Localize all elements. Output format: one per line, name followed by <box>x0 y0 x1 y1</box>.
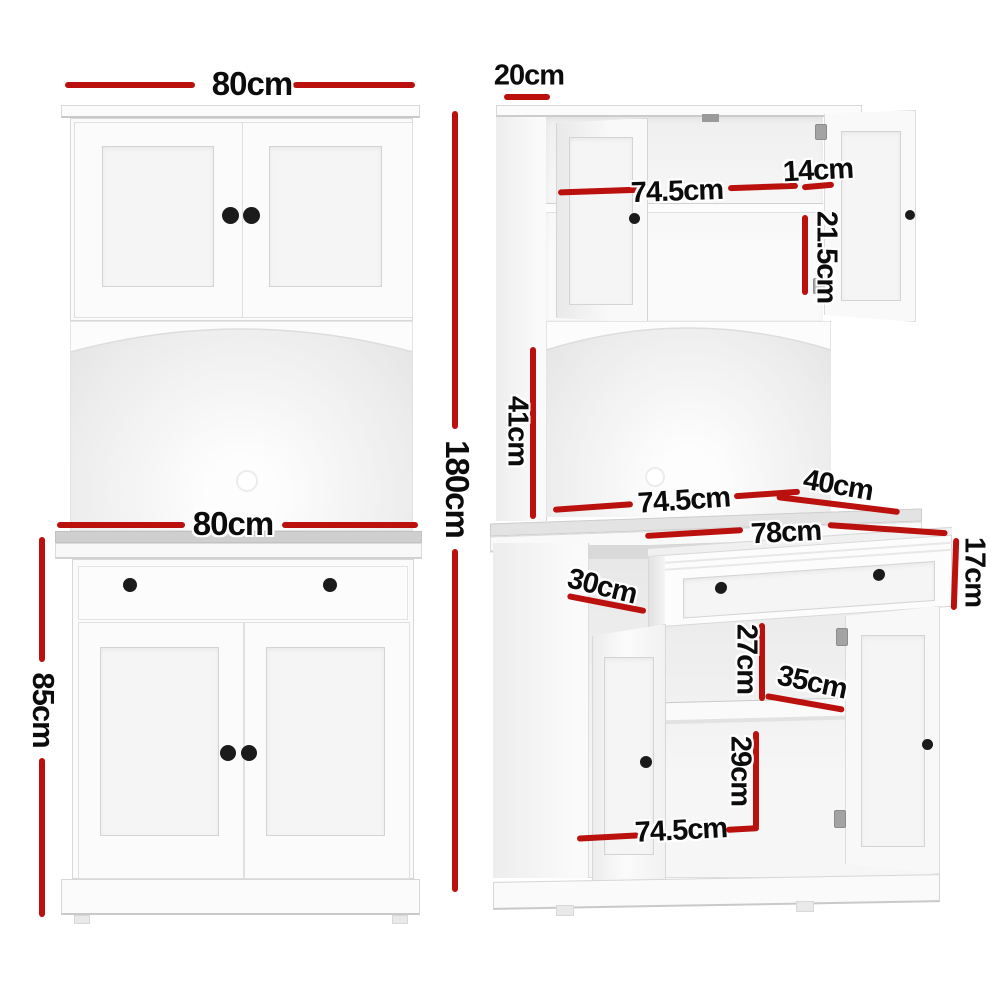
knob <box>241 745 257 761</box>
open-base-door-left <box>592 624 666 894</box>
knob <box>905 210 915 220</box>
knob <box>220 745 236 761</box>
dim-label-top-width: 80cm <box>212 65 292 103</box>
foot <box>392 915 408 924</box>
open-arch-rail <box>546 321 831 351</box>
product-dimension-diagram: 80cm 180cm 80cm 85cm <box>0 0 1000 1000</box>
open-hutch-door-left-panel <box>569 137 633 305</box>
front-base-door-left-panel <box>100 647 219 836</box>
dim-line-overall-height-upper <box>452 111 458 429</box>
knob <box>323 578 337 592</box>
dim-line-counter-width-right <box>282 522 418 528</box>
knob <box>922 739 933 750</box>
dim-label-base-height: 85cm <box>25 672 61 747</box>
dim-label-top-depth: 20cm <box>494 60 564 93</box>
front-arch-rail <box>70 321 413 353</box>
dim-label-overall-height: 180cm <box>438 440 476 538</box>
front-drawer <box>78 566 408 620</box>
dim-label-hutch-interior-width: 74.5cm <box>630 174 723 210</box>
dim-label-below-shelf-clearance: 29cm <box>724 736 757 806</box>
open-base-door-right-panel <box>861 635 925 847</box>
front-plinth <box>61 879 420 915</box>
knob <box>243 207 260 224</box>
foot <box>74 915 90 924</box>
open-drawer-side <box>649 556 665 627</box>
dim-label-counter-width: 80cm <box>193 505 273 543</box>
dim-label-drawer-height: 17cm <box>958 537 991 607</box>
knob <box>222 207 239 224</box>
open-top-board <box>496 105 862 117</box>
foot <box>796 901 814 912</box>
dim-line-hutch-shelf-height <box>802 215 808 295</box>
front-top-board <box>61 105 420 118</box>
dim-line-counter-width-left <box>57 522 185 528</box>
dim-label-middle-open-height: 41cm <box>501 396 534 466</box>
dim-line-top-width-left <box>65 82 195 88</box>
dim-label-drawer-width: 78cm <box>750 515 822 552</box>
dim-label-above-shelf-clearance: 27cm <box>730 624 763 694</box>
knob <box>640 756 652 768</box>
hinge <box>815 124 827 140</box>
front-hutch-door-left-panel <box>102 146 214 287</box>
dim-label-hutch-shelf-height: 21.5cm <box>810 211 843 303</box>
cable-hole <box>645 467 665 487</box>
dim-label-middle-interior-width: 74.5cm <box>637 481 731 520</box>
front-base-door-right-panel <box>266 647 385 836</box>
dim-line-base-height-upper <box>39 537 45 662</box>
hinge <box>834 810 846 828</box>
front-hutch-door-right-panel <box>269 146 382 287</box>
foot <box>556 905 574 916</box>
dim-line-top-depth <box>504 94 550 100</box>
front-counter-edge <box>55 543 422 559</box>
vent-slot <box>702 114 719 122</box>
knob <box>629 213 640 224</box>
knob <box>123 578 137 592</box>
cable-hole <box>236 470 258 492</box>
dim-line-base-height-lower <box>39 758 45 917</box>
dim-line-top-width-right <box>293 82 415 88</box>
hinge <box>836 628 848 646</box>
dim-line-overall-height-lower <box>452 549 458 892</box>
dim-label-base-interior-width: 74.5cm <box>634 812 728 850</box>
